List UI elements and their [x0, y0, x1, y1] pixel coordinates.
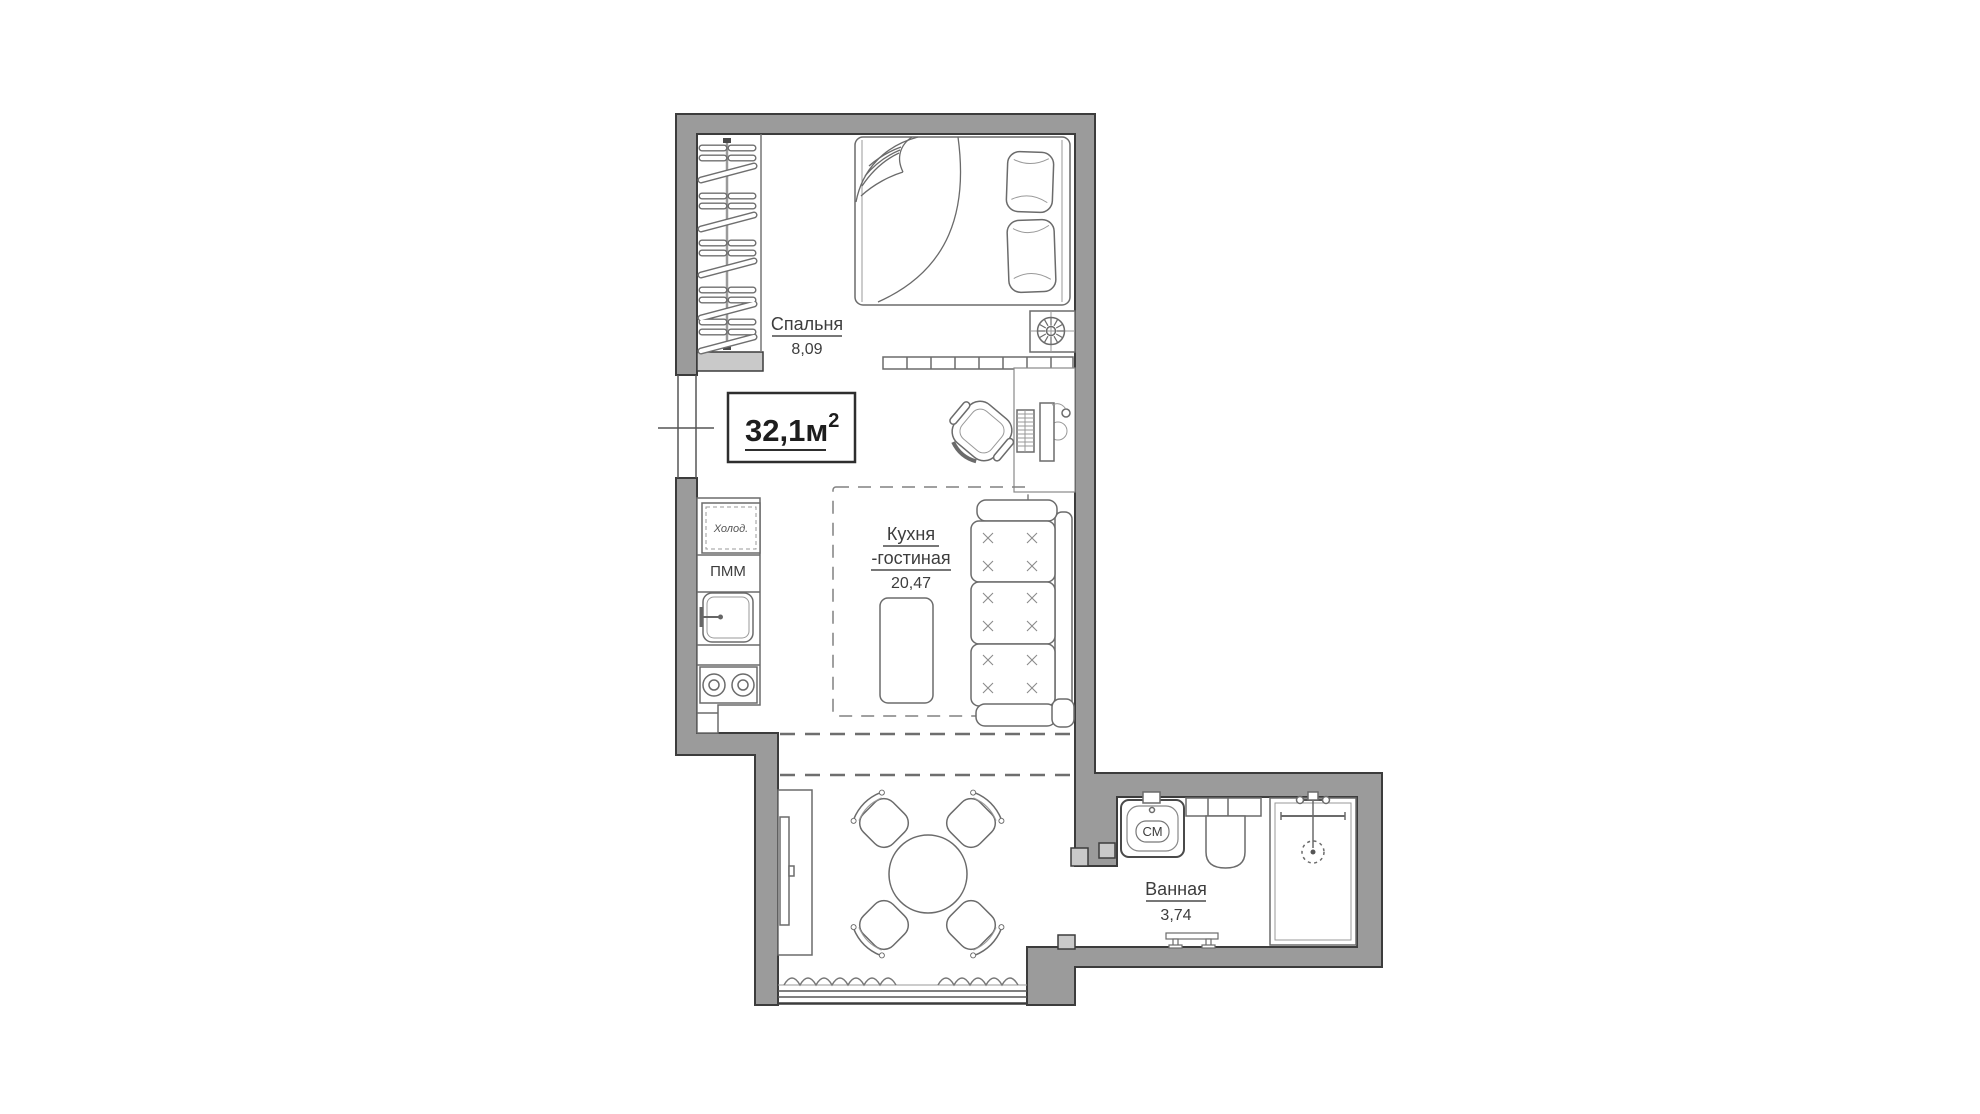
wardrobe-niche-sill — [697, 352, 763, 371]
fridge-label: Холод. — [713, 523, 748, 535]
sofa-cushion-2 — [971, 582, 1055, 644]
dishwasher-label: ПММ — [710, 563, 746, 580]
pillow-bottom — [1007, 219, 1056, 293]
sofa-cushion-3 — [971, 644, 1055, 706]
window-radiator — [778, 978, 1027, 1004]
sofa-armrest-top — [977, 500, 1057, 521]
radiator-icon — [784, 978, 896, 985]
floor-plan-page: Холод. ПММ — [0, 0, 1980, 1114]
kitchen-sink — [701, 593, 753, 642]
zone-divider-lines — [780, 734, 1073, 775]
desk-area — [938, 368, 1075, 492]
kitchen-counter: Холод. ПММ — [697, 498, 760, 733]
sofa-cushion-1 — [971, 521, 1055, 582]
wc — [1186, 798, 1261, 868]
dining-table — [889, 835, 967, 913]
wall-block-3 — [1058, 935, 1075, 949]
wardrobe — [701, 134, 761, 352]
wall-block-2 — [1099, 843, 1115, 858]
pillow-top — [1006, 151, 1054, 213]
entrance-opening — [658, 375, 714, 478]
sofa-armrest-bottom — [976, 704, 1056, 726]
bench — [1166, 933, 1218, 948]
wall-block-1 — [1071, 848, 1088, 866]
stove — [700, 667, 757, 703]
kitchen-living-label-2: -гостиная — [871, 548, 950, 568]
svg-text:32,1м2: 32,1м2 — [745, 410, 839, 448]
sofa — [971, 500, 1074, 727]
shower — [1270, 792, 1356, 945]
total-area-box: 32,1м2 — [728, 393, 855, 462]
kitchen-living-label-1: Кухня — [887, 524, 935, 544]
washing-machine: СМ — [1121, 792, 1184, 857]
bathroom-area: 3,74 — [1160, 907, 1191, 924]
radiator-icon-2 — [938, 978, 1018, 985]
coffee-table — [880, 598, 933, 703]
dining-set — [848, 787, 1006, 960]
washing-machine-label: СМ — [1142, 824, 1162, 839]
bed — [855, 137, 1070, 305]
bathroom-fixtures: СМ — [1121, 792, 1356, 948]
monitor — [1040, 403, 1054, 461]
bedroom-label: Спальня — [771, 314, 843, 334]
bedroom-area: 8,09 — [791, 341, 822, 358]
sofa-corner — [1052, 699, 1074, 727]
vent-fan-symbol — [1030, 311, 1075, 352]
tv — [780, 817, 789, 925]
office-chair — [938, 391, 1023, 475]
floor-plan: Холод. ПММ — [0, 0, 1980, 1114]
bathroom-label: Ванная — [1145, 879, 1207, 899]
total-area-sup: 2 — [828, 410, 839, 432]
sofa-back — [1055, 512, 1072, 718]
total-area-value: 32,1м — [745, 413, 828, 448]
fridge: Холод. — [702, 503, 760, 553]
rail-end-top — [723, 138, 731, 143]
kitchen-living-area: 20,47 — [891, 575, 931, 592]
shelf-partition — [883, 357, 1073, 369]
tv-stand — [778, 790, 812, 955]
